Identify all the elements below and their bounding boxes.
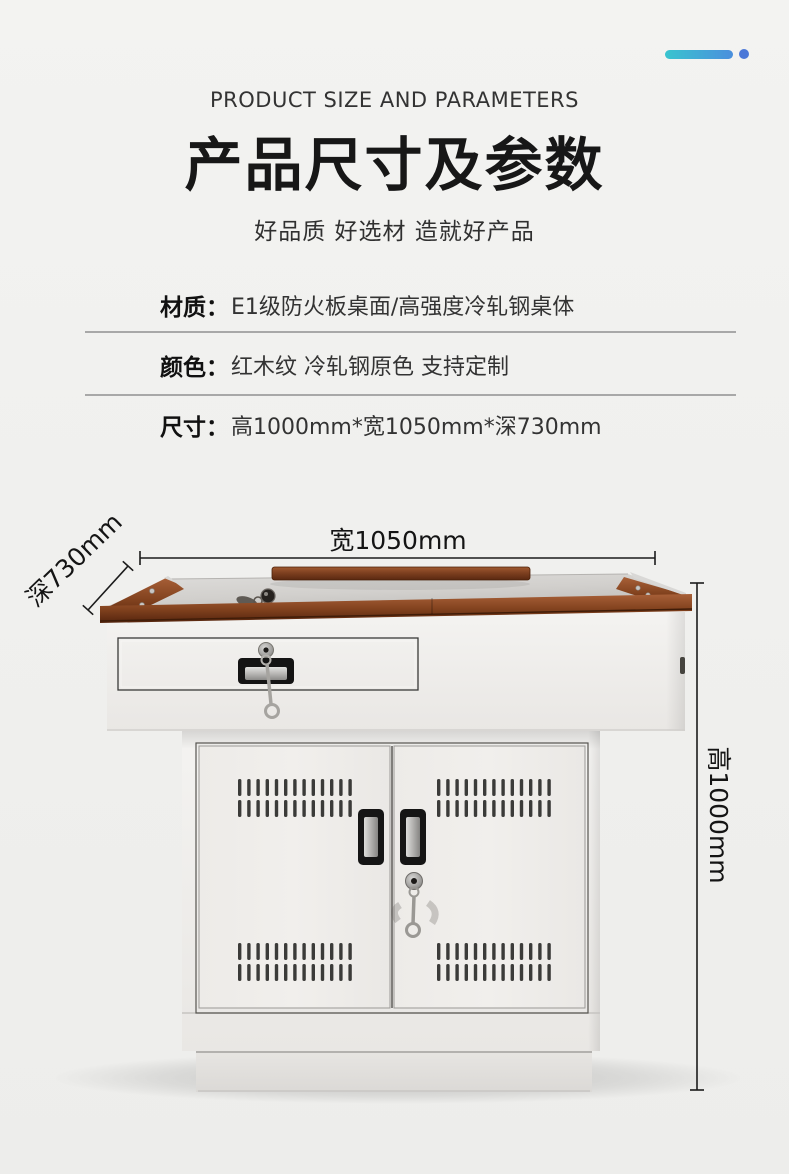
dimension-width-label: 宽1050mm [329,526,466,555]
pen-ledge [272,567,530,580]
door-handle-right [400,809,426,865]
product-figure: 宽1050mm 深730mm 高1000mm [0,0,789,1174]
plinth-base [196,1051,592,1092]
dimension-depth: 深730mm [20,507,133,614]
product-page: PRODUCT SIZE AND PARAMETERS 产品尺寸及参数 好品质 … [0,0,789,1174]
dimension-width: 宽1050mm [140,526,655,565]
cabinet-door-right [394,746,585,1008]
lower-cabinet [182,731,600,1051]
door-handle-left [358,809,384,865]
dimension-depth-label: 深730mm [20,507,127,612]
upper-box [107,609,685,731]
dimension-height: 高1000mm [690,583,733,1090]
dimension-height-label: 高1000mm [704,746,733,883]
